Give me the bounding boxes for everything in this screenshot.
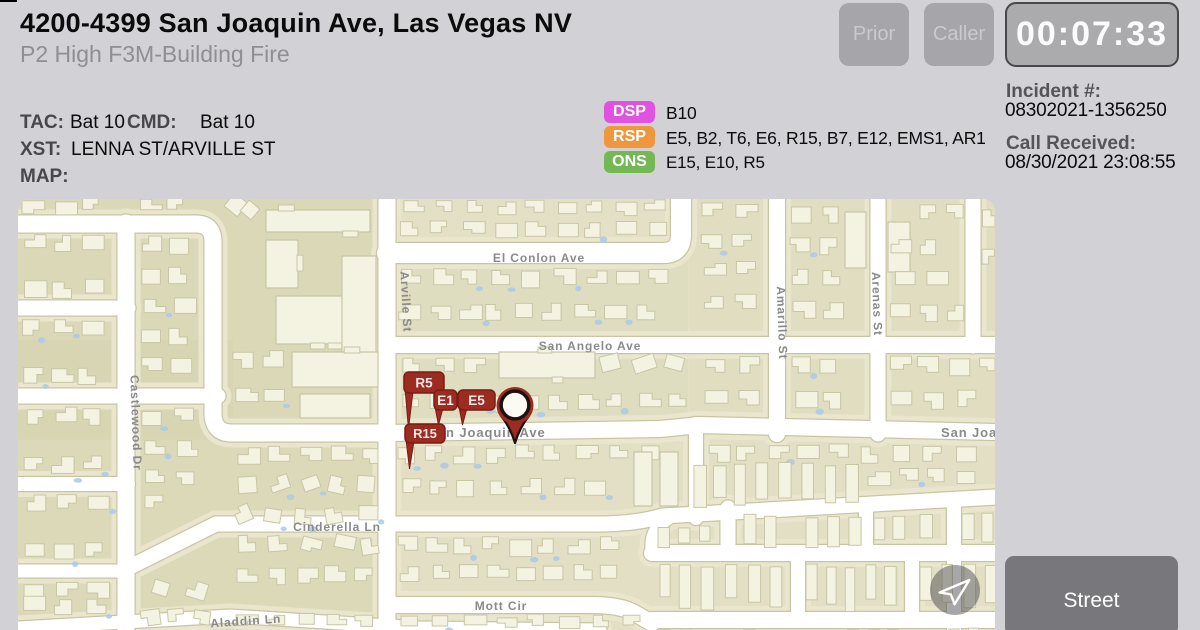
svg-text:San Angelo Ave: San Angelo Ave [539,339,642,353]
svg-text:Cinderella Ln: Cinderella Ln [293,520,381,534]
svg-text:San Joaquin Ave: San Joaquin Ave [941,425,995,440]
svg-text:E1: E1 [437,393,454,408]
svg-text:Mott Cir: Mott Cir [475,599,528,613]
svg-text:R15: R15 [413,426,437,441]
svg-text:E5: E5 [468,393,485,408]
svg-text:Amarillo St: Amarillo St [774,286,791,360]
svg-text:R5: R5 [415,375,433,390]
svg-text:El Conlon Ave: El Conlon Ave [493,251,585,265]
svg-text:San Joaquin Ave: San Joaquin Ave [428,425,545,440]
svg-text:Arenas St: Arenas St [869,272,885,337]
